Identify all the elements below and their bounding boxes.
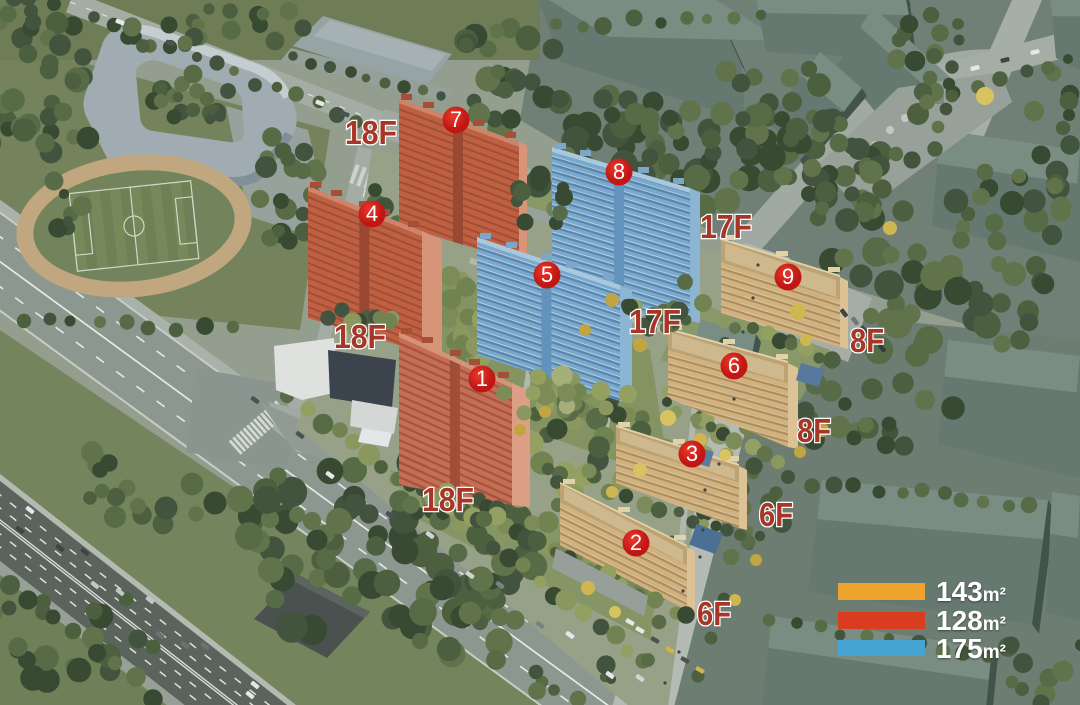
svg-text:1: 1 (476, 366, 488, 391)
svg-text:6F: 6F (759, 496, 793, 533)
svg-text:2: 2 (630, 530, 642, 555)
svg-text:5: 5 (541, 262, 553, 287)
svg-text:4: 4 (366, 201, 378, 226)
svg-text:8: 8 (613, 159, 625, 184)
svg-text:8F: 8F (797, 412, 831, 449)
svg-text:18F: 18F (334, 318, 386, 355)
svg-text:8F: 8F (850, 322, 884, 359)
svg-text:18F: 18F (422, 481, 474, 518)
svg-text:3: 3 (686, 441, 698, 466)
svg-text:17F: 17F (700, 208, 752, 245)
svg-text:17F: 17F (629, 303, 681, 340)
svg-text:7: 7 (450, 107, 462, 132)
svg-text:6: 6 (728, 353, 740, 378)
svg-text:18F: 18F (345, 114, 397, 151)
svg-text:6F: 6F (697, 595, 731, 632)
svg-text:9: 9 (782, 264, 794, 289)
